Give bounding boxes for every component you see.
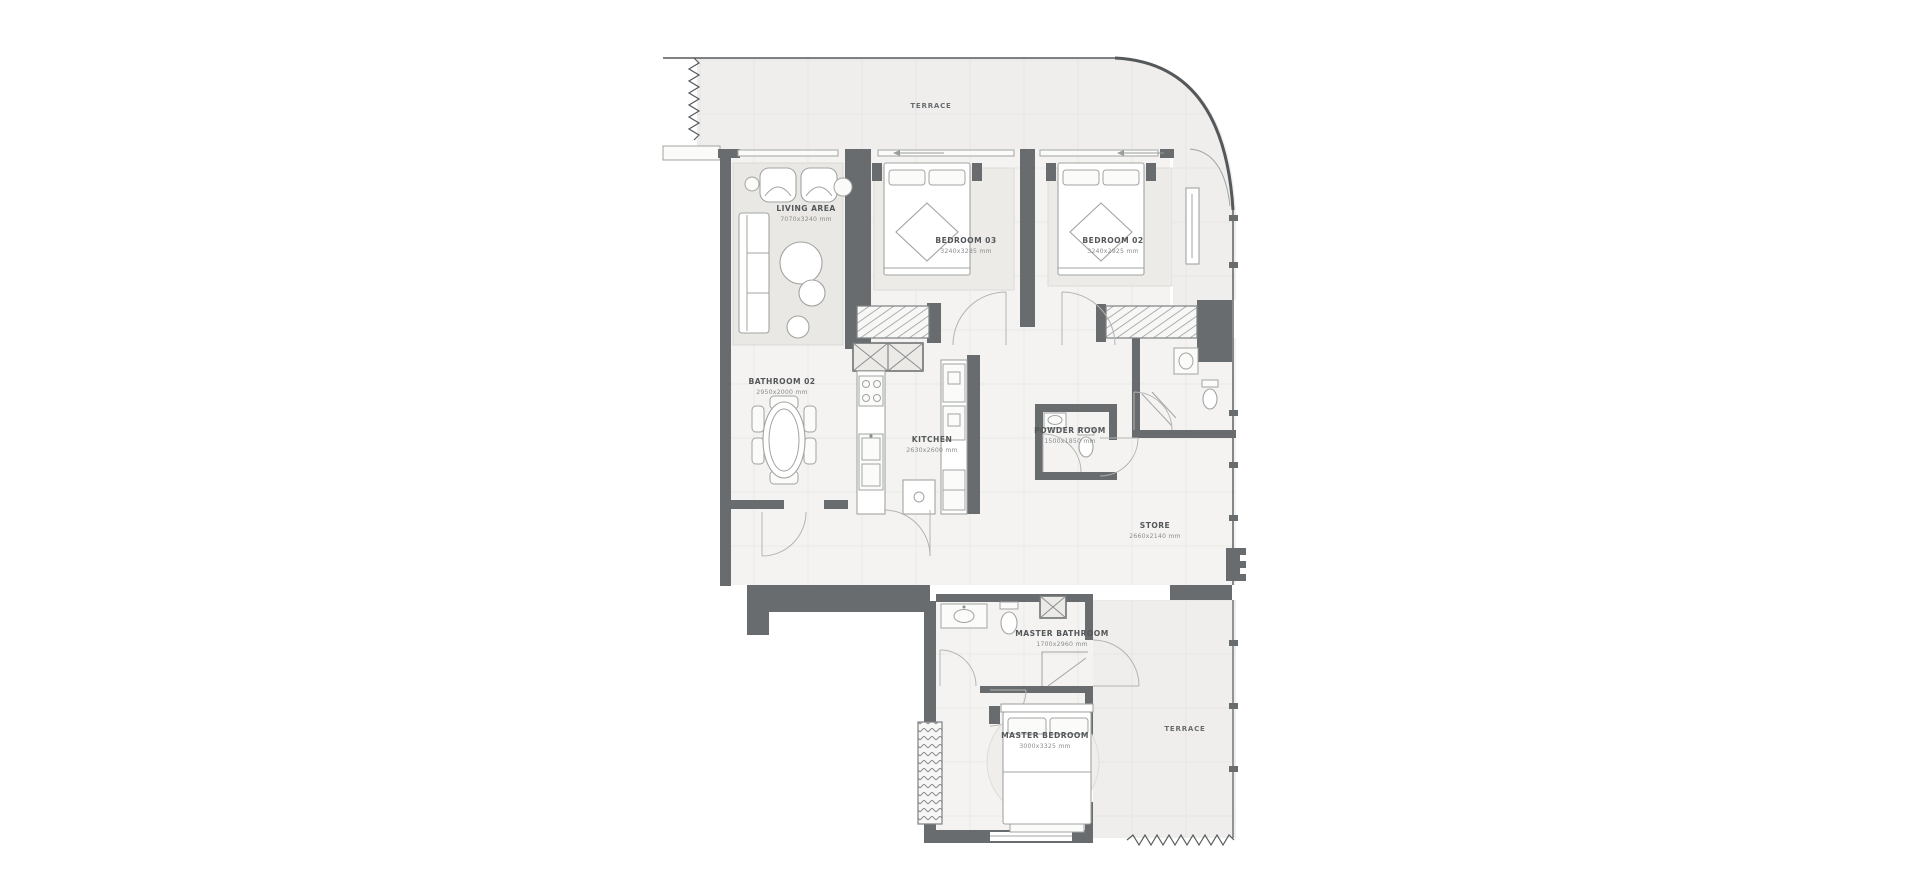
bed [872, 163, 982, 275]
vanity [941, 604, 987, 628]
room-label-master-bath: MASTER BATHROOM [1015, 629, 1108, 638]
room-dims-bedroom3: 3240x3285 mm [940, 248, 992, 255]
room-label-terrace-top: TERRACE [910, 102, 951, 110]
room-label-master-bed: MASTER BEDROOM [1001, 731, 1089, 740]
room-dims-master-bath: 1700x2960 mm [1036, 641, 1088, 648]
room-dims-bathroom2: 2950x2000 mm [756, 389, 808, 396]
windows-top [738, 150, 1164, 156]
room-label-bathroom2: BATHROOM 02 [748, 377, 815, 386]
vanity [1174, 348, 1198, 374]
shaft-box [853, 343, 923, 371]
side-table [745, 177, 759, 191]
room-dims-kitchen: 2630x2600 mm [906, 447, 958, 454]
armchair [801, 168, 837, 202]
terrace-step [663, 146, 720, 160]
room-dims-living: 7070x3240 mm [780, 216, 832, 223]
floor-plan-page: LIVING AREA 7070x3240 mm BEDROOM 03 3240… [0, 0, 1920, 892]
sofa [739, 213, 769, 333]
shaft-box [1040, 596, 1066, 618]
armchair [760, 168, 796, 202]
wardrobe [1106, 306, 1197, 338]
room-label-bedroom3: BEDROOM 03 [935, 236, 996, 245]
room-label-store: STORE [1140, 521, 1170, 530]
coffee-table [799, 280, 825, 306]
wardrobe [857, 306, 929, 338]
room-label-living: LIVING AREA [776, 204, 835, 213]
bed [989, 704, 1093, 832]
coffee-table [787, 316, 809, 338]
room-label-bedroom2: BEDROOM 02 [1082, 236, 1143, 245]
terrace-right-floor [1093, 600, 1236, 838]
room-label-powder: POWDER ROOM [1034, 426, 1106, 435]
room-dims-bedroom2: 3240x2925 mm [1087, 248, 1139, 255]
side-table [834, 178, 852, 196]
sink [859, 434, 883, 490]
wardrobe [918, 722, 942, 824]
room-dims-store: 2660x2140 mm [1129, 533, 1181, 540]
bed [1046, 163, 1156, 275]
stove [859, 376, 883, 406]
room-dims-powder: 1500x1850 mm [1044, 438, 1096, 445]
column-detail [1226, 548, 1246, 581]
floor-plan-drawing: LIVING AREA 7070x3240 mm BEDROOM 03 3240… [0, 0, 1920, 892]
room-dims-master-bed: 3000x3325 mm [1019, 743, 1071, 750]
living-area: LIVING AREA 7070x3240 mm [733, 163, 852, 345]
toilet [1202, 380, 1218, 409]
coffee-table [780, 242, 822, 284]
room-label-terrace-right: TERRACE [1164, 725, 1205, 733]
room-label-kitchen: KITCHEN [912, 435, 953, 444]
oven-unit [903, 480, 935, 514]
